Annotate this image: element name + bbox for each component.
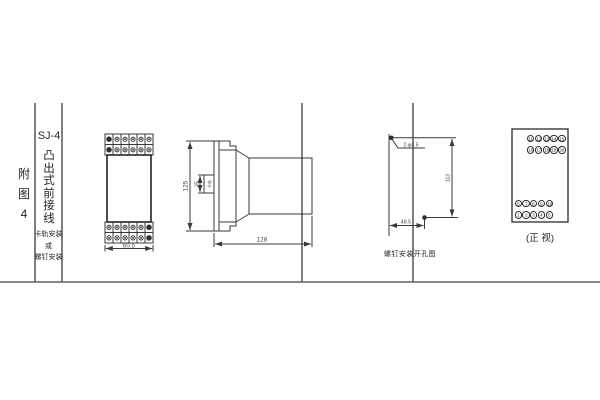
terminal-circle: 8 xyxy=(530,200,537,207)
rail-clip-label: 卡轨 xyxy=(206,180,212,189)
front-view-drawing xyxy=(105,134,153,252)
terminal-circle: 12 xyxy=(535,135,542,142)
terminal-circle: 18 xyxy=(543,146,550,153)
frame-rules xyxy=(0,103,600,282)
drill-horizontal-dim: 48.5 xyxy=(401,219,411,225)
terminal-view-drawing xyxy=(512,129,568,222)
title-char: 线 xyxy=(43,213,55,226)
mounting-note-line: 卡轨安装 xyxy=(35,229,63,241)
terminal-row-1-5: 1 2 3 4 5 xyxy=(515,211,554,218)
terminal-view-caption: (正 视) xyxy=(526,230,554,244)
figure-char: 图 xyxy=(18,187,30,201)
terminal-circle: 17 xyxy=(535,146,542,153)
title-char: 前 xyxy=(43,188,55,201)
terminal-circle: 13 xyxy=(543,135,550,142)
terminal-circle: 10 xyxy=(546,200,553,207)
model-label: SJ-4 xyxy=(38,130,61,142)
side-clip-dim: 35 xyxy=(194,181,200,187)
terminal-circle: 15 xyxy=(558,135,565,142)
title-char: 接 xyxy=(43,200,55,213)
front-width-dim: 60.5 xyxy=(123,242,135,249)
terminal-circle: 4 xyxy=(538,211,545,218)
terminal-circle: 2 xyxy=(522,211,529,218)
terminal-circle: 11 xyxy=(527,135,534,142)
terminal-circle: 16 xyxy=(527,146,534,153)
drill-view-caption: 螺钉安装开孔图 xyxy=(384,247,436,258)
terminal-circle: 1 xyxy=(515,211,522,218)
mounting-note-line: 螺钉安装 xyxy=(35,252,63,264)
drill-view-drawing xyxy=(389,134,458,236)
figure-page: 附 图 4 SJ-4 凸 出 式 前 接 线 卡轨安装 或 螺钉安装 60.5 … xyxy=(0,0,600,400)
title-char: 凸 xyxy=(43,150,55,163)
title-char: 出 xyxy=(43,163,55,176)
figure-title-vertical: 凸 出 式 前 接 线 xyxy=(37,150,61,226)
side-view-drawing xyxy=(186,141,312,247)
terminal-circle: 20 xyxy=(558,146,565,153)
figure-char: 附 xyxy=(18,167,30,181)
line-art xyxy=(0,0,600,400)
figure-char: 4 xyxy=(21,207,28,221)
mounting-note-line: 或 xyxy=(45,241,52,253)
side-height-dim: 125 xyxy=(183,181,190,191)
figure-number-label: 附 图 4 xyxy=(12,167,36,221)
side-depth-dim: 128 xyxy=(257,237,267,244)
drill-holes-label: 2-φ4.5 xyxy=(403,142,418,148)
terminal-circle: 14 xyxy=(550,135,557,142)
terminal-row-16-20: 16 17 18 19 20 xyxy=(527,146,566,153)
terminal-row-11-15: 11 12 13 14 15 xyxy=(527,135,566,142)
title-char: 式 xyxy=(43,175,55,188)
terminal-circle: 7 xyxy=(522,200,529,207)
terminal-circle: 6 xyxy=(515,200,522,207)
terminal-circle: 5 xyxy=(546,211,553,218)
terminal-row-6-10: 6 7 8 9 10 xyxy=(515,200,554,207)
terminal-circle: 9 xyxy=(538,200,545,207)
terminal-circle: 19 xyxy=(550,146,557,153)
mounting-note: 卡轨安装 或 螺钉安装 xyxy=(34,229,63,264)
terminal-circle: 3 xyxy=(530,211,537,218)
drill-vertical-dim: 113 xyxy=(445,174,451,182)
